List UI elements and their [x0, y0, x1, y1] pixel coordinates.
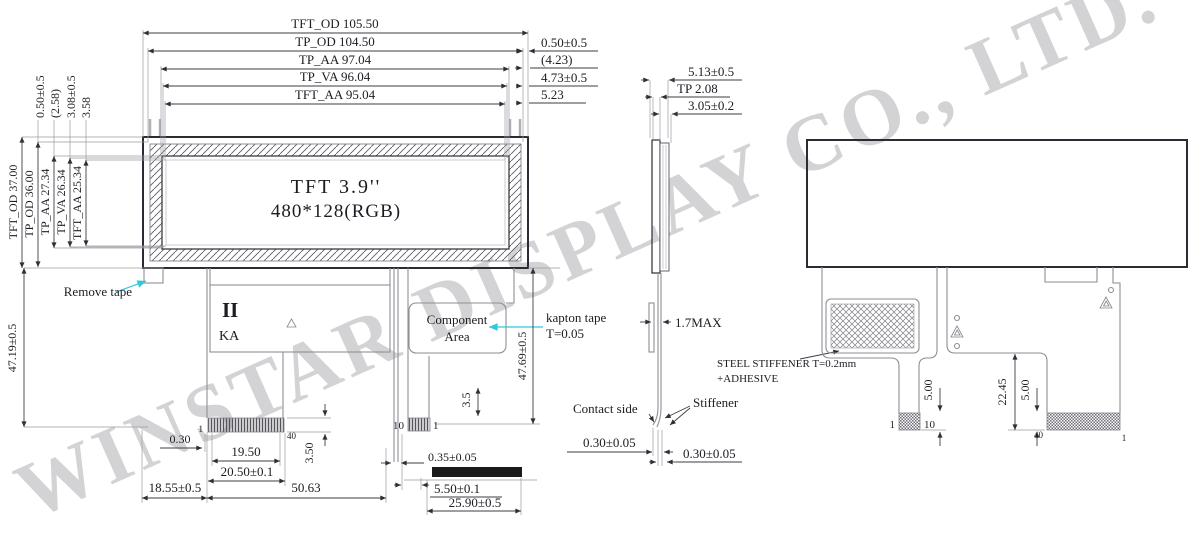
dim-423: (4.23) [541, 52, 572, 67]
remove-tape-label: Remove tape [64, 284, 132, 299]
back-fpc-outline [822, 267, 1120, 430]
dim-tp208-label: TP 2.08 [677, 81, 718, 96]
steel-stiffener-note-line1: STEEL STIFFENER T=0.2mm [717, 358, 857, 370]
pin-40-back: 40 [1034, 430, 1044, 440]
pin-1-front-left: 1 [199, 424, 204, 434]
dim-500-right-label: 5.00 [1018, 380, 1032, 401]
dim-305-label: 3.05±0.2 [688, 98, 734, 113]
pin-1-back-right: 1 [1122, 433, 1127, 443]
stiffener-bar [432, 467, 522, 477]
dim-050-right: 0.50±0.5 [541, 35, 587, 50]
dim-tft-od-v: TFT_OD 37.00 [6, 165, 20, 240]
dim-tft-od-h: TFT_OD 105.50 [291, 16, 378, 31]
dim-513-label: 5.13±0.5 [688, 64, 734, 79]
tft-module-drawing: WINSTAR DISPLAY CO., LTD. TFT 3.9'' 480*… [0, 0, 1200, 535]
pin-1-back-left: 1 [890, 419, 896, 431]
dim-tft-aa-h: TFT_AA 95.04 [295, 87, 376, 102]
dim-030-left-label: 0.30±0.05 [583, 435, 636, 450]
steel-stiffener-note-line2: +ADHESIVE [717, 373, 778, 385]
dim-17max-label: 1.7MAX [675, 315, 722, 330]
dim-035-label: 0.35±0.05 [428, 450, 477, 464]
dim-350-label: 3.50 [302, 443, 316, 464]
warning-triangle-icon [1100, 297, 1112, 308]
steel-stiffener-area [831, 304, 914, 348]
dim-tp-va-v: TP_VA 26.34 [54, 169, 68, 234]
connector-40pin-back [1047, 413, 1120, 430]
pin-1-front-right: 1 [433, 420, 439, 432]
dim-tft-aa-v: TFT_AA 25.34 [70, 166, 84, 240]
dim-5063-label: 50.63 [291, 480, 320, 495]
contact-side-label: Contact side [573, 401, 638, 416]
dim-2050-label: 20.50±0.1 [221, 464, 274, 479]
dim-2245-label: 22.45 [995, 379, 1009, 406]
fiducial-circle-icon [955, 344, 960, 349]
front-top-right-dimensions: 0.50±0.5 (4.23) 4.73±0.5 5.23 [515, 35, 598, 103]
component-area-line2: Area [444, 329, 469, 344]
dim-258: (2.58) [48, 89, 62, 118]
side-tail-callouts: 1.7MAX STEEL STIFFENER T=0.2mm +ADHESIVE… [567, 315, 857, 466]
dim-tp-aa-h: TP_AA 97.04 [299, 52, 372, 67]
connector-10pin-back [899, 413, 920, 430]
front-bottom-middle-dimensions: 10 1 0.35±0.05 5.50±0.1 25.90±0.5 [381, 420, 537, 515]
connector-10pin-front [408, 418, 430, 431]
remove-tape-callout: Remove tape [64, 268, 163, 299]
dim-tp-aa-v: TP_AA 27.34 [38, 169, 52, 236]
dim-500-left-label: 5.00 [921, 380, 935, 401]
connector-40pin-front [208, 418, 284, 432]
dim-050-left-top: 0.50±0.5 [33, 75, 47, 118]
kapton-label-line2: T=0.05 [546, 326, 584, 341]
display-resolution-label: 480*128(RGB) [271, 201, 401, 222]
stiffener-label: Stiffener [693, 395, 739, 410]
dim-1855-label: 18.55±0.5 [149, 480, 202, 495]
dim-tp-od-v: TP_OD 36.00 [22, 170, 36, 237]
display-size-label: TFT 3.9'' [291, 176, 381, 198]
warning-triangle-icon [951, 326, 963, 337]
dim-tp-od-h: TP_OD 104.50 [295, 34, 374, 49]
dim-35-gap: 3.5 [459, 393, 473, 408]
dim-1950-label: 19.50 [231, 444, 260, 459]
dim-030-label: 0.30 [170, 432, 191, 446]
pin-10-back: 10 [924, 419, 936, 431]
dim-tp-va-h: TP_VA 96.04 [300, 69, 371, 84]
ka-mark: II [222, 298, 238, 322]
dim-523: 5.23 [541, 87, 564, 102]
back-view: 5.00 1 10 22.45 5.00 40 1 [807, 140, 1187, 446]
dim-358: 3.58 [79, 97, 93, 118]
dim-308: 3.08±0.5 [64, 75, 78, 118]
side-top-dimensions: 5.13±0.5 TP 2.08 3.05±0.2 [641, 64, 742, 143]
back-dimensions: 5.00 1 10 22.45 5.00 40 1 [890, 354, 1127, 446]
dim-030-right-label: 0.30±0.05 [683, 446, 736, 461]
dim-2590-label: 25.90±0.5 [449, 495, 502, 510]
fiducial-circle-icon [1109, 288, 1114, 293]
component-area-line1: Component [427, 312, 488, 327]
pin-40-front: 40 [287, 431, 297, 441]
engineering-drawing-page: WINSTAR DISPLAY CO., LTD. TFT 3.9'' 480*… [0, 0, 1200, 535]
ka-label: KA [219, 329, 240, 344]
dim-550-label: 5.50±0.1 [434, 481, 480, 496]
dim-473: 4.73±0.5 [541, 70, 587, 85]
fiducial-circle-icon [955, 316, 960, 321]
pin-10-front: 10 [393, 420, 405, 432]
dim-4769: 47.69±0.5 [515, 332, 529, 381]
kapton-label-line1: kapton tape [546, 310, 607, 325]
dim-4719: 47.19±0.5 [5, 324, 19, 373]
